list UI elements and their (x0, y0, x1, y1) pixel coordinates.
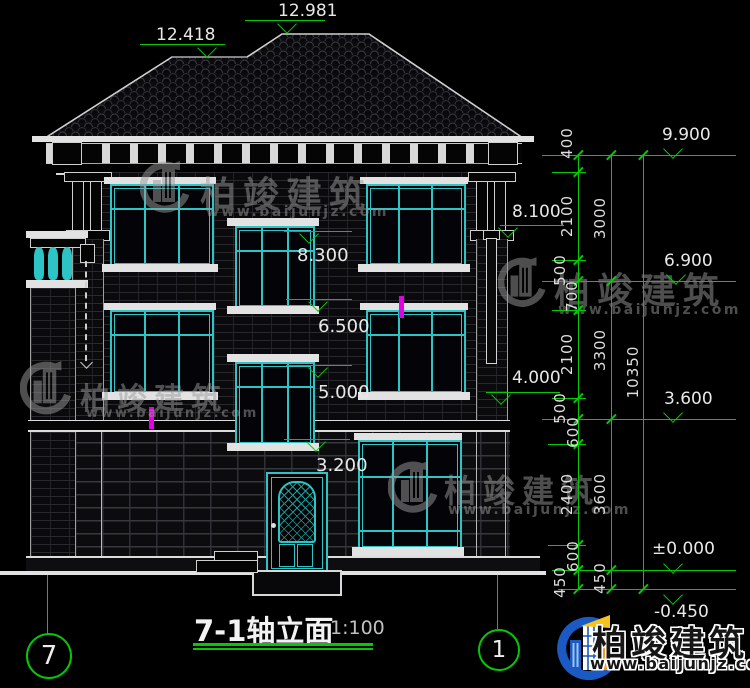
window-sill (352, 547, 464, 556)
dim-label: 2100 (558, 333, 576, 375)
dim-label: 400 (558, 127, 576, 159)
axis-bubble-1: 1 (478, 629, 520, 671)
level-label: 3.200 (316, 455, 368, 476)
corbel-left (52, 142, 82, 165)
watermark-logo-icon (20, 360, 76, 426)
dim-label: 450 (591, 562, 609, 594)
watermark-logo-icon (498, 256, 550, 318)
watermark: 柏竣建筑 www.baijunjz.com (140, 158, 440, 238)
level-label: 5.000 (318, 382, 370, 403)
axis-leader-left (47, 575, 48, 634)
dim-label: 2100 (558, 195, 576, 237)
footer-logo-url: www.baijunjz.com (590, 654, 750, 673)
axis-leader-right (497, 575, 498, 629)
title-underline (193, 643, 373, 646)
dimension-line-overall (643, 154, 644, 590)
dim-label: 450 (551, 566, 569, 598)
pilaster-left-shaft-b (90, 181, 102, 232)
baluster (48, 247, 58, 280)
axis-number: 7 (41, 641, 58, 671)
baluster (34, 247, 44, 280)
axis-bubble-7: 7 (26, 633, 72, 679)
baluster (62, 247, 72, 280)
dim-label: 2400 (558, 473, 576, 515)
window-lintel (104, 303, 216, 310)
window-sill (227, 443, 319, 451)
corbel-right (488, 142, 518, 165)
level-label: 8.100 (512, 202, 561, 222)
window-lintel (360, 303, 468, 310)
pilaster-left-shaft-a (72, 181, 84, 232)
dim-label: 10350 (624, 346, 642, 399)
title-underline-2 (193, 648, 373, 650)
dim-label: 3600 (591, 473, 609, 515)
ornament-chain (85, 261, 87, 361)
level-label: 8.300 (297, 245, 349, 266)
elevation-drawing: 柏竣建筑 www.baijunjz.com 柏竣建筑 www.baijunjz.… (0, 0, 750, 688)
door-arch-lattice (278, 481, 316, 543)
watermark-url: www.baijunjz.com (206, 204, 389, 220)
level-line (284, 231, 352, 232)
level-label: 6.500 (318, 316, 370, 337)
window-2f-right (366, 310, 466, 396)
balcony-cap (26, 231, 88, 238)
axis-number: 1 (492, 637, 507, 663)
extension-stub (552, 172, 586, 173)
pier-edge (101, 429, 102, 556)
window-sill (358, 392, 470, 400)
dim-label: 700 (563, 280, 581, 312)
watermark-url: www.baijunjz.com (86, 406, 259, 421)
door-knob (271, 523, 276, 528)
ornament-left (80, 244, 95, 263)
window-sill (102, 264, 218, 272)
dimension-line-middle (611, 154, 612, 590)
level-line (558, 589, 736, 590)
balcony-base (26, 280, 88, 288)
pilaster-right-shaft-a (476, 181, 488, 232)
dimension-line-inner (578, 154, 579, 590)
window-sill (358, 264, 470, 272)
step-lower (196, 560, 258, 573)
window-lintel (354, 433, 462, 440)
dim-label: 600 (564, 416, 582, 448)
door-panel (297, 544, 313, 567)
magenta-marker (399, 296, 404, 318)
dim-label: 3000 (591, 197, 609, 239)
door-platform (252, 570, 342, 596)
entrance-door (266, 472, 328, 574)
roof-outline (30, 28, 530, 142)
downpipe-right (486, 238, 497, 364)
watermark-logo-icon (388, 460, 442, 524)
eave-fascia (32, 136, 534, 142)
drawing-scale: 1:100 (330, 617, 385, 639)
level-label: 4.000 (512, 368, 561, 388)
level-label: ±0.000 (652, 539, 715, 559)
watermark: 柏竣建筑 www.baijunjz.com (20, 360, 320, 430)
watermark-logo-icon (140, 160, 194, 224)
dim-label: 3300 (591, 329, 609, 371)
window-sill (227, 306, 319, 314)
door-panel (279, 544, 295, 567)
